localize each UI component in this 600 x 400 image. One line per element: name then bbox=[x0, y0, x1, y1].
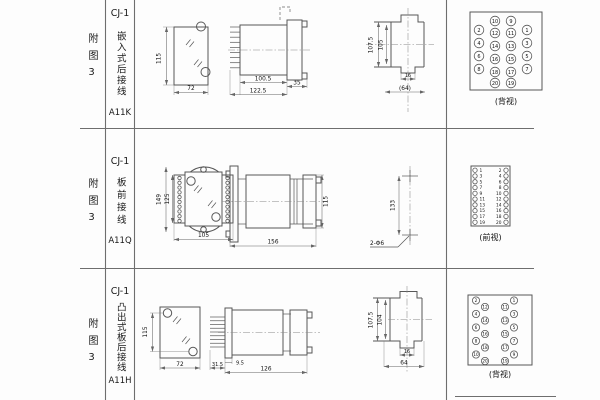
terminal-pin-number: 19 bbox=[502, 359, 508, 364]
terminal-pin-number: 5 bbox=[513, 325, 516, 330]
row2-side-view-drawing: 156 115 bbox=[222, 166, 330, 247]
dim-foot: 16 bbox=[405, 73, 411, 79]
dim-foot: 16 bbox=[404, 349, 410, 355]
row2-type-column: CJ-1 板前接线 A11Q bbox=[106, 156, 134, 246]
terminal-pin-number: 8 bbox=[477, 67, 480, 73]
terminal-pin-number: 2 bbox=[475, 298, 478, 303]
terminal-pin-number: 17 bbox=[508, 70, 514, 76]
terminal-pin-circle bbox=[473, 174, 477, 178]
row1-figure-label: 附图3 bbox=[86, 33, 96, 85]
relay-body bbox=[185, 172, 222, 226]
panel-flange bbox=[225, 308, 232, 358]
view-label: (前视) bbox=[479, 232, 501, 242]
terminal-pin-number: 3 bbox=[525, 41, 528, 47]
terminal-pin-circle bbox=[504, 220, 508, 224]
terminal-pin-number: 5 bbox=[525, 54, 528, 60]
dim-ref-width: (64) bbox=[399, 86, 411, 92]
terminal-pin-number: 13 bbox=[480, 202, 486, 208]
lifting-hook bbox=[280, 7, 290, 20]
view-label: (背视) bbox=[495, 96, 517, 106]
terminal-pin-circle bbox=[473, 197, 477, 201]
terminal-pin-number: 17 bbox=[502, 345, 508, 350]
terminal-pins-comb bbox=[230, 27, 240, 68]
manual-figure-page: 115 72 100.5 35 122.5 107.5 105 bbox=[0, 0, 600, 400]
terminal-pin-number: 6 bbox=[499, 179, 502, 185]
terminal-pins: 2468101214161820111315171913579 bbox=[472, 297, 517, 365]
terminal-pin-number: 20 bbox=[496, 220, 502, 226]
terminal-pin-number: 16 bbox=[492, 57, 498, 63]
dim-inner-height: 125 bbox=[165, 193, 171, 204]
row1-panel-cutout-drawing: 107.5 105 16 (64) bbox=[366, 8, 434, 112]
terminal-pin-number: 13 bbox=[502, 318, 508, 323]
terminal-pin-circle bbox=[473, 168, 477, 172]
dim-height: 115 bbox=[324, 196, 330, 207]
terminal-pin-number: 4 bbox=[475, 312, 478, 317]
terminal-pin-number: 18 bbox=[482, 345, 488, 350]
hatch-mark bbox=[182, 337, 190, 345]
terminal-pin-number: 7 bbox=[525, 67, 528, 73]
terminal-pin-number: 7 bbox=[480, 185, 483, 191]
row1-front-view-drawing: 115 72 bbox=[157, 22, 211, 95]
dim-outer: 107.5 bbox=[369, 311, 375, 328]
terminal-pin-number: 6 bbox=[477, 54, 480, 60]
terminal-pin-number: 15 bbox=[502, 332, 508, 337]
row2-terminal-view: 1357911131517192468101214161820 (前视) bbox=[471, 166, 510, 242]
terminal-pin-number: 15 bbox=[508, 57, 514, 63]
dim-total-length: 122.5 bbox=[250, 89, 267, 95]
screw-hole bbox=[201, 227, 207, 233]
terminal-block-frame bbox=[470, 12, 542, 90]
terminal-pin-number: 10 bbox=[492, 19, 498, 25]
row1-side-view-drawing: 100.5 35 122.5 bbox=[228, 7, 312, 95]
terminal-pin-number: 12 bbox=[492, 31, 498, 37]
terminal-pin-number: 9 bbox=[480, 191, 483, 197]
terminal-pin-circle bbox=[504, 191, 508, 195]
row3-side-view-drawing: 31.5 9.5 126 bbox=[210, 308, 320, 374]
terminal-pin-number: 7 bbox=[513, 339, 516, 344]
mounting-hole bbox=[163, 309, 171, 317]
dim-width: 72 bbox=[176, 362, 184, 368]
screw-hole bbox=[201, 167, 207, 173]
row3-panel-cutout-drawing: 107.5 104 16 64 bbox=[369, 286, 433, 372]
row2-code: A11Q bbox=[108, 236, 131, 246]
row2-model: CJ-1 bbox=[111, 156, 130, 167]
terminal-pin-number: 11 bbox=[508, 31, 514, 37]
dim-flange-thickness: 9.5 bbox=[236, 361, 244, 367]
terminal-pin-circle bbox=[504, 214, 508, 218]
terminal-pins: 1357911131517192468101214161820 bbox=[473, 168, 508, 226]
row2-drilling-plan-drawing: 133 2-Φ6 bbox=[370, 166, 418, 247]
row3-type-column: CJ-1 凸出式板后接线 A11H bbox=[106, 286, 134, 386]
terminal-pin-number: 18 bbox=[492, 70, 498, 76]
dim-width: 105 bbox=[198, 233, 209, 239]
terminal-pin-number: 9 bbox=[509, 19, 512, 25]
dim-length: 126 bbox=[260, 367, 271, 373]
terminal-pins: 1092121114141336161558181772019 bbox=[474, 16, 532, 88]
row1-type-name: 嵌入式后接线 bbox=[115, 31, 125, 97]
terminal-pin-number: 20 bbox=[492, 81, 498, 87]
terminal-pin-circle bbox=[504, 197, 508, 201]
view-label: (背视) bbox=[489, 369, 511, 379]
terminal-pin-number: 2 bbox=[499, 168, 502, 174]
terminal-pin-number: 20 bbox=[482, 359, 488, 364]
terminal-pin-circle bbox=[504, 208, 508, 212]
terminal-pin-circle bbox=[473, 208, 477, 212]
row2-type-name: 板前接线 bbox=[115, 177, 125, 227]
terminal-pin-circle bbox=[504, 174, 508, 178]
dim-body-length: 100.5 bbox=[255, 77, 272, 83]
terminal-pin-number: 16 bbox=[496, 208, 502, 214]
terminal-pin-number: 14 bbox=[482, 318, 488, 323]
row3-type-name: 凸出式板后接线 bbox=[115, 302, 125, 372]
terminal-pin-number: 4 bbox=[477, 41, 480, 47]
dim-pin-length: 31.5 bbox=[212, 362, 223, 368]
row1-model: CJ-1 bbox=[111, 8, 130, 19]
terminal-pin-number: 19 bbox=[508, 81, 514, 87]
dim-hole-span: 133 bbox=[391, 200, 397, 211]
row3-terminal-view: 2468101214161820111315171913579 (背视) bbox=[468, 295, 532, 379]
terminal-pin-number: 11 bbox=[502, 305, 508, 310]
terminal-pin-number: 18 bbox=[496, 214, 502, 220]
terminal-pin-number: 9 bbox=[513, 352, 516, 357]
terminal-pin-number: 12 bbox=[482, 305, 488, 310]
dim-inner: 104 bbox=[378, 314, 384, 325]
dim-height: 115 bbox=[157, 53, 163, 64]
terminal-pin-circle bbox=[504, 180, 508, 184]
terminal-pins-comb bbox=[210, 317, 225, 347]
row3-front-view-drawing: 115 72 bbox=[143, 307, 200, 370]
terminal-pin-number: 8 bbox=[499, 185, 502, 191]
mounting-hole bbox=[189, 347, 197, 355]
terminal-pin-circle bbox=[473, 214, 477, 218]
terminal-pin-number: 1 bbox=[480, 168, 483, 174]
mounting-hole bbox=[201, 68, 210, 77]
dim-height: 115 bbox=[143, 326, 149, 337]
terminal-pin-number: 3 bbox=[513, 312, 516, 317]
terminal-pin-number: 4 bbox=[499, 174, 502, 180]
row3-model: CJ-1 bbox=[111, 286, 130, 297]
row2-figure-label: 附图3 bbox=[86, 178, 96, 230]
row2-front-view-drawing: 149 125 105 bbox=[157, 167, 234, 241]
terminal-pin-circle bbox=[504, 168, 508, 172]
row3-figure-label: 附图3 bbox=[86, 318, 96, 370]
dim-base-width: 64 bbox=[400, 361, 408, 367]
hatch-mark bbox=[173, 317, 181, 325]
terminal-pin-number: 8 bbox=[475, 339, 478, 344]
terminal-pin-number: 12 bbox=[496, 197, 502, 203]
dim-length: 156 bbox=[267, 240, 278, 246]
terminal-pin-number: 5 bbox=[480, 179, 483, 185]
terminal-pin-number: 1 bbox=[513, 298, 516, 303]
terminal-pin-number: 14 bbox=[496, 202, 502, 208]
dim-width: 72 bbox=[187, 86, 195, 92]
dim-cutout-outer: 107.5 bbox=[369, 36, 375, 53]
terminal-pin-number: 16 bbox=[482, 332, 488, 337]
terminal-pin-number: 2 bbox=[477, 28, 480, 34]
row1-code: A11K bbox=[109, 108, 131, 118]
terminal-pin-number: 19 bbox=[480, 220, 486, 226]
terminal-pin-number: 10 bbox=[496, 191, 502, 197]
dim-flange-depth: 35 bbox=[293, 81, 301, 87]
terminal-pin-circle bbox=[473, 185, 477, 189]
hatch-mark bbox=[194, 60, 202, 68]
row3-code: A11H bbox=[108, 376, 131, 386]
row1-terminal-view: 1092121114141336161558181772019 (背视) bbox=[470, 12, 542, 106]
terminal-pin-circle bbox=[473, 191, 477, 195]
terminal-pin-circle bbox=[504, 185, 508, 189]
terminal-pin-number: 11 bbox=[480, 197, 486, 203]
terminal-pin-number: 13 bbox=[508, 44, 514, 50]
terminal-pin-circle bbox=[504, 203, 508, 207]
hole-spec-note: 2-Φ6 bbox=[370, 241, 384, 247]
terminal-pin-number: 14 bbox=[492, 44, 498, 50]
terminal-pin-circle bbox=[473, 220, 477, 224]
dim-cutout-inner: 105 bbox=[379, 39, 385, 50]
terminal-pin-number: 17 bbox=[480, 214, 486, 220]
terminal-pin-number: 6 bbox=[475, 325, 478, 330]
terminal-pin-number: 15 bbox=[480, 208, 486, 214]
dim-outer-height: 149 bbox=[157, 194, 163, 205]
row1-type-column: CJ-1 嵌入式后接线 A11K bbox=[106, 8, 134, 118]
terminal-pin-circle bbox=[473, 180, 477, 184]
hatch-mark bbox=[186, 40, 194, 48]
terminal-pin-circle bbox=[473, 203, 477, 207]
terminal-pin-number: 3 bbox=[480, 174, 483, 180]
terminal-pin-number: 10 bbox=[473, 352, 479, 357]
terminal-pin-number: 1 bbox=[525, 28, 528, 34]
